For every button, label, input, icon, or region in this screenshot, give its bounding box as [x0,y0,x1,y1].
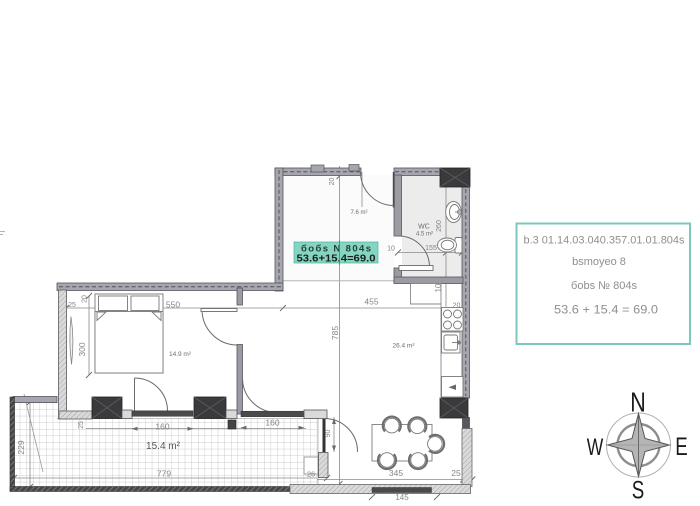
svg-text:785: 785 [330,326,340,340]
svg-text:90: 90 [325,430,332,438]
svg-text:25: 25 [451,468,461,478]
svg-text:455: 455 [364,297,378,307]
svg-text:26.4 m²: 26.4 m² [392,343,415,350]
svg-text:550: 550 [166,300,180,310]
svg-text:260: 260 [436,220,443,232]
svg-text:26: 26 [307,470,315,479]
svg-text:53.6 + 15.4 = 69.0: 53.6 + 15.4 = 69.0 [554,303,658,317]
svg-text:N: N [630,387,646,418]
svg-text:25: 25 [68,302,76,309]
svg-text:S: S [632,477,645,502]
svg-text:7.6 m²: 7.6 m² [350,210,367,216]
svg-text:10: 10 [434,283,443,292]
svg-text:WC: WC [418,224,430,231]
svg-text:10: 10 [387,246,395,253]
svg-text:W: W [587,434,604,461]
svg-text:20: 20 [82,295,89,303]
svg-text:b.3 01.14.03.040.357.01.01.804: b.3 01.14.03.040.357.01.01.804s [524,235,685,247]
svg-text:20: 20 [453,303,461,310]
svg-text:345: 345 [389,468,403,478]
svg-text:155: 155 [425,245,437,252]
svg-text:300: 300 [77,342,87,356]
svg-text:25: 25 [78,421,85,429]
svg-text:бobs № 804s: бobs № 804s [571,280,637,292]
svg-text:4.5 m²: 4.5 m² [416,232,433,238]
svg-text:779: 779 [157,469,171,479]
svg-text:15.4 m²: 15.4 m² [146,441,181,452]
svg-text:145: 145 [395,493,409,501]
svg-text:160: 160 [155,422,169,432]
svg-text:229: 229 [16,440,26,454]
svg-text:53.6+15.4=69.0: 53.6+15.4=69.0 [297,253,376,265]
svg-text:E: E [675,433,688,461]
svg-text:160: 160 [265,418,279,428]
svg-text:20: 20 [329,178,336,186]
svg-text:bsmoyeo 8: bsmoyeo 8 [572,256,626,268]
svg-text:14.9 m²: 14.9 m² [169,351,192,358]
